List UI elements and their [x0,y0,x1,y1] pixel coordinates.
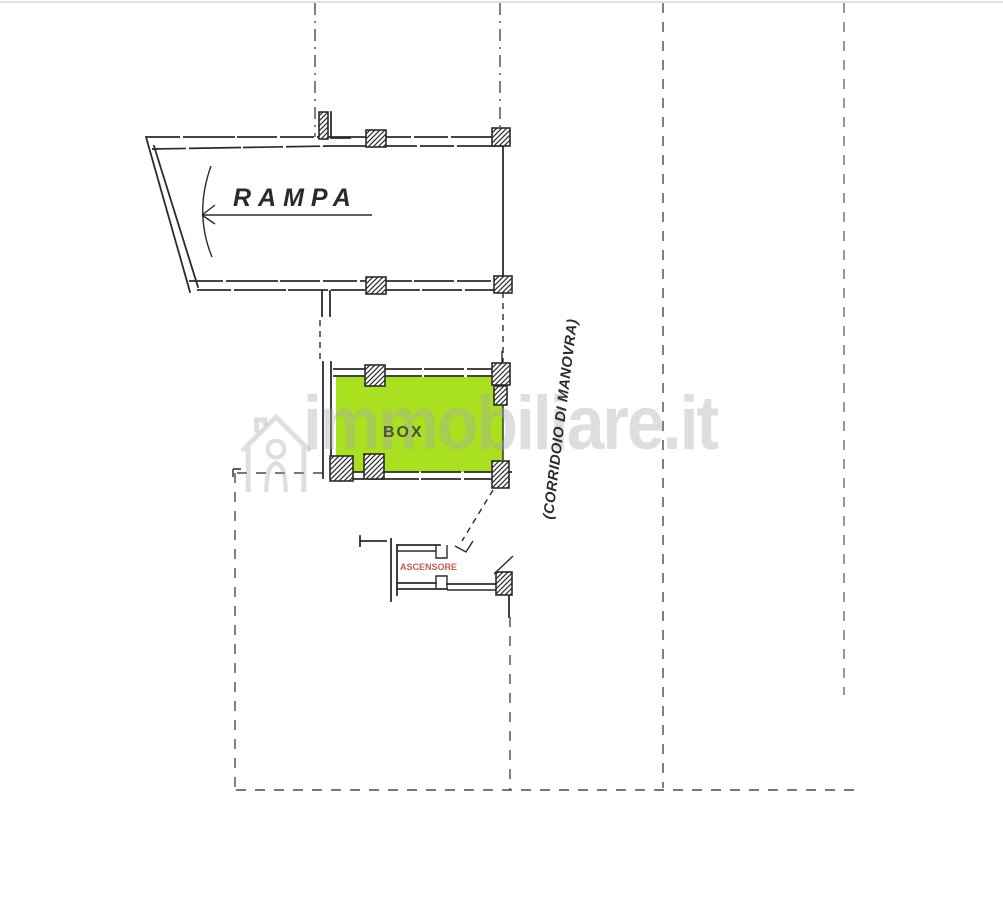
garage-box [323,351,512,488]
door-swing-line [455,490,493,552]
ramp-label: RAMPA [233,184,358,213]
ramp-walls [146,112,504,316]
elevator-room [360,536,513,617]
ramp-pillars [366,128,512,294]
box-label: BOX [383,424,424,442]
elevator-label: ASCENSORE [400,562,457,572]
floor-plan-image: immobiliare.it RAMPA BOX (CORRIDOIO DI M… [0,0,1003,900]
floor-plan-drawing [0,0,1003,900]
